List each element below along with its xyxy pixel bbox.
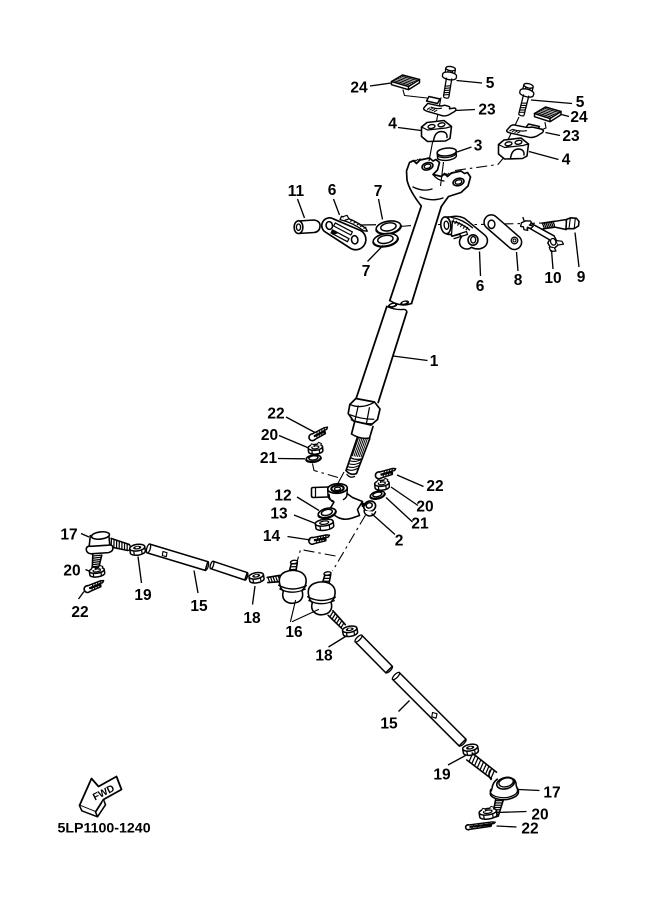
- svg-text:13: 13: [270, 506, 288, 523]
- svg-text:7: 7: [374, 183, 383, 200]
- svg-text:23: 23: [562, 128, 580, 145]
- svg-text:20: 20: [63, 563, 80, 580]
- svg-text:16: 16: [285, 624, 303, 641]
- svg-text:22: 22: [426, 478, 443, 495]
- svg-text:24: 24: [350, 80, 368, 97]
- svg-text:17: 17: [60, 527, 77, 544]
- svg-text:24: 24: [570, 109, 588, 126]
- svg-text:9: 9: [577, 269, 586, 286]
- svg-text:4: 4: [562, 152, 571, 169]
- svg-text:18: 18: [315, 648, 333, 665]
- svg-text:18: 18: [243, 610, 261, 627]
- svg-text:5LP1100-1240: 5LP1100-1240: [58, 821, 151, 837]
- svg-text:20: 20: [261, 427, 278, 444]
- svg-text:6: 6: [328, 182, 337, 199]
- svg-text:22: 22: [521, 821, 538, 838]
- svg-text:22: 22: [267, 406, 284, 423]
- svg-text:8: 8: [514, 272, 523, 289]
- svg-text:7: 7: [362, 263, 371, 280]
- svg-text:21: 21: [260, 450, 278, 467]
- svg-text:22: 22: [71, 604, 88, 621]
- svg-text:19: 19: [134, 587, 152, 604]
- svg-text:4: 4: [388, 116, 397, 133]
- svg-text:21: 21: [411, 516, 429, 533]
- svg-text:11: 11: [288, 183, 305, 200]
- svg-text:15: 15: [380, 716, 398, 733]
- svg-text:23: 23: [478, 102, 496, 119]
- svg-text:19: 19: [433, 767, 451, 784]
- svg-text:6: 6: [476, 278, 485, 295]
- svg-text:15: 15: [190, 598, 208, 615]
- svg-text:1: 1: [430, 353, 439, 370]
- svg-text:12: 12: [274, 488, 291, 505]
- svg-text:20: 20: [416, 499, 433, 516]
- svg-text:10: 10: [544, 270, 561, 287]
- svg-text:17: 17: [543, 785, 560, 802]
- svg-text:3: 3: [474, 138, 483, 155]
- svg-text:14: 14: [263, 528, 281, 545]
- svg-text:5: 5: [486, 75, 495, 92]
- svg-text:2: 2: [395, 533, 404, 550]
